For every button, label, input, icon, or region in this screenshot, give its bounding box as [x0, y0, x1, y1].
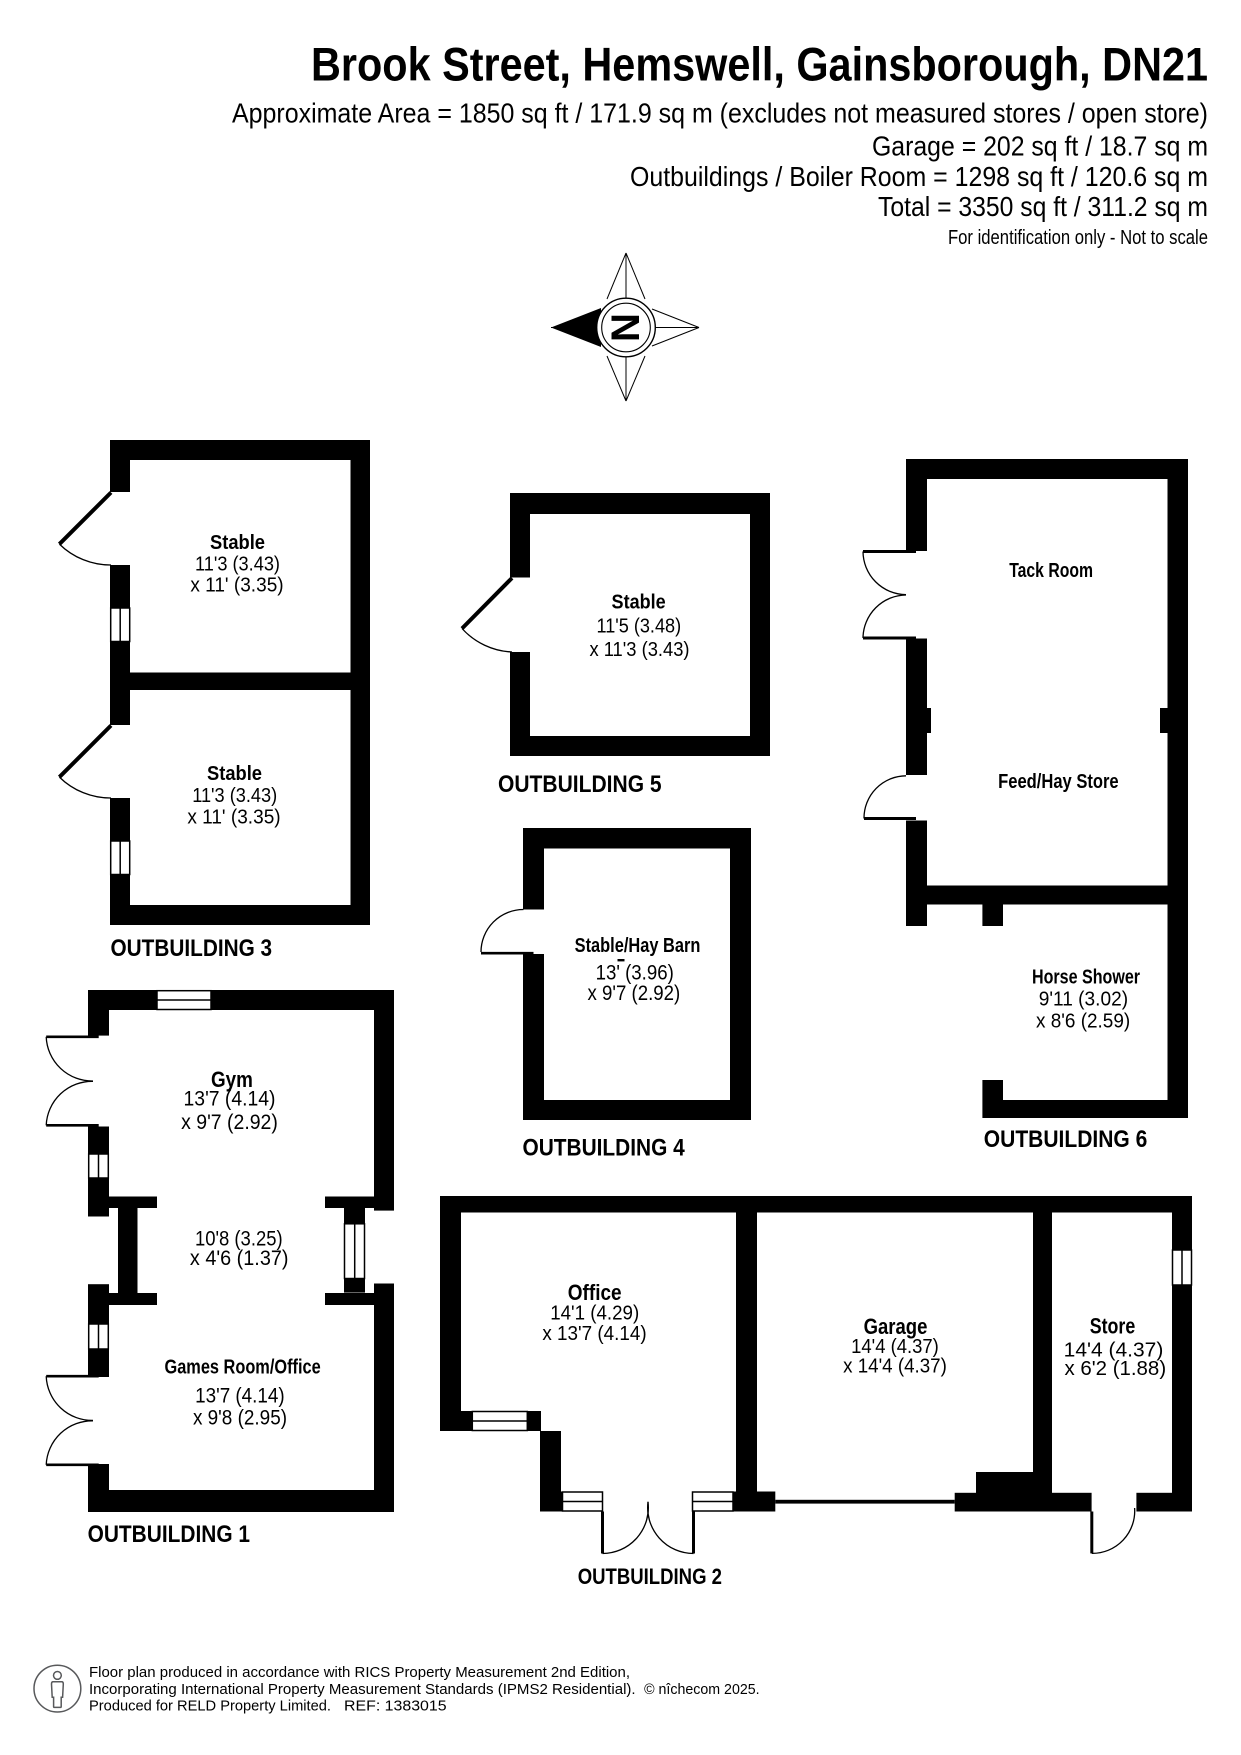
svg-text:Incorporating International Pr: Incorporating International Property Mea… — [89, 1682, 636, 1698]
svg-text:11'3 (3.43): 11'3 (3.43) — [192, 785, 277, 807]
svg-text:Stable: Stable — [612, 591, 666, 614]
svg-text:OUTBUILDING 5: OUTBUILDING 5 — [498, 771, 662, 798]
svg-text:Brook Street, Hemswell, Gainsb: Brook Street, Hemswell, Gainsborough, DN… — [311, 38, 1208, 91]
svg-text:x 9'7 (2.92): x 9'7 (2.92) — [588, 982, 681, 1005]
svg-text:N: N — [604, 313, 648, 342]
svg-text:x 11' (3.35): x 11' (3.35) — [187, 806, 280, 828]
svg-text:Stable: Stable — [210, 531, 265, 554]
svg-text:Stable: Stable — [207, 762, 262, 785]
svg-text:x 4'6 (1.37): x 4'6 (1.37) — [190, 1246, 289, 1270]
svg-text:Stable/Hay Barn: Stable/Hay Barn — [575, 935, 701, 957]
svg-text:OUTBUILDING 4: OUTBUILDING 4 — [523, 1135, 686, 1162]
svg-text:x 8'6 (2.59): x 8'6 (2.59) — [1036, 1010, 1130, 1033]
svg-text:11'3 (3.43): 11'3 (3.43) — [195, 554, 280, 576]
svg-text:Horse Shower: Horse Shower — [1032, 967, 1140, 989]
svg-text:x 9'8 (2.95): x 9'8 (2.95) — [193, 1407, 287, 1430]
svg-text:REF: 1383015: REF: 1383015 — [344, 1699, 447, 1715]
svg-text:11'5 (3.48): 11'5 (3.48) — [597, 615, 682, 638]
svg-text:Produced for RELD Property Lim: Produced for RELD Property Limited. — [89, 1699, 331, 1715]
svg-text:Feed/Hay Store: Feed/Hay Store — [998, 771, 1119, 793]
svg-text:Approximate Area = 1850 sq ft: Approximate Area = 1850 sq ft / 171.9 sq… — [232, 98, 1208, 129]
svg-text:© nîchecom 2025.: © nîchecom 2025. — [644, 1682, 760, 1698]
svg-text:x 13'7 (4.14): x 13'7 (4.14) — [542, 1322, 646, 1345]
svg-text:OUTBUILDING 2: OUTBUILDING 2 — [578, 1564, 722, 1589]
svg-text:Store: Store — [1090, 1313, 1136, 1338]
svg-text:x 6'2 (1.88): x 6'2 (1.88) — [1064, 1357, 1166, 1380]
svg-text:x 11'3 (3.43): x 11'3 (3.43) — [589, 638, 689, 661]
svg-text:x 14'4 (4.37): x 14'4 (4.37) — [843, 1354, 947, 1377]
svg-text:OUTBUILDING 1: OUTBUILDING 1 — [88, 1521, 250, 1548]
svg-text:x 9'7 (2.92): x 9'7 (2.92) — [181, 1111, 278, 1134]
svg-text:Tack Room: Tack Room — [1009, 560, 1093, 582]
svg-text:Outbuildings / Boiler Room = 1: Outbuildings / Boiler Room = 1298 sq ft … — [630, 161, 1208, 192]
svg-text:Total = 3350 sq ft / 311.2 sq: Total = 3350 sq ft / 311.2 sq m — [878, 191, 1208, 222]
svg-text:13'7 (4.14): 13'7 (4.14) — [195, 1384, 285, 1407]
svg-text:OUTBUILDING 6: OUTBUILDING 6 — [984, 1126, 1148, 1153]
svg-text:Floor plan produced in accorda: Floor plan produced in accordance with R… — [89, 1665, 630, 1681]
svg-text:OUTBUILDING 3: OUTBUILDING 3 — [111, 935, 273, 962]
svg-text:Garage = 202 sq ft / 18.7 sq m: Garage = 202 sq ft / 18.7 sq m — [872, 131, 1208, 162]
svg-text:9'11 (3.02): 9'11 (3.02) — [1039, 988, 1128, 1011]
svg-text:Games Room/Office: Games Room/Office — [165, 1356, 321, 1378]
svg-text:x 11' (3.35): x 11' (3.35) — [190, 575, 283, 597]
svg-text:For identification only - Not: For identification only - Not to scale — [948, 227, 1208, 249]
svg-text:13'7 (4.14): 13'7 (4.14) — [184, 1088, 276, 1111]
